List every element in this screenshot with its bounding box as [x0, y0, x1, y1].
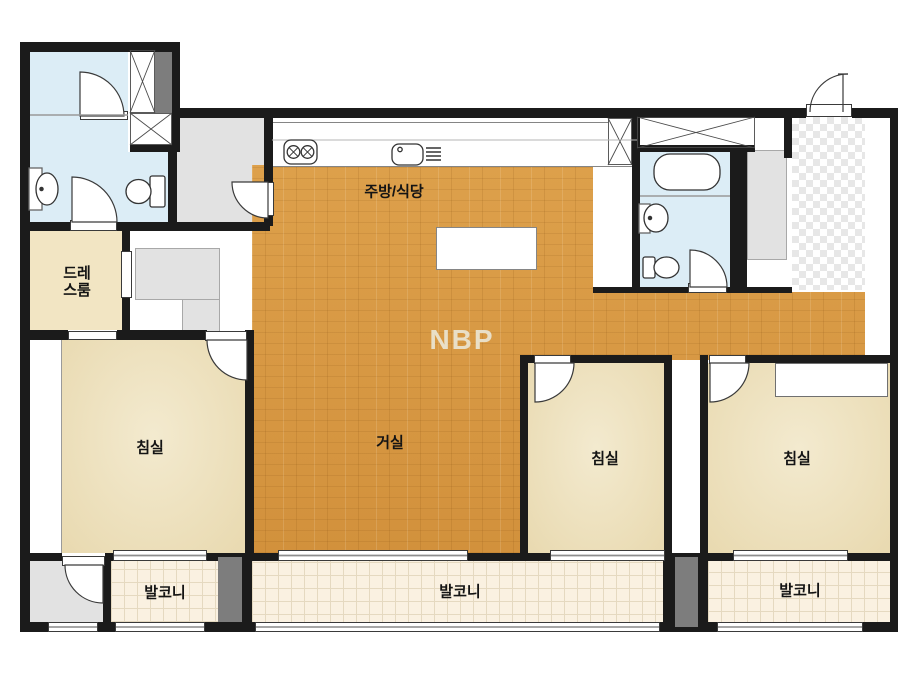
room-label-bedroom-left: 침실 — [136, 441, 164, 458]
washbasin-icon — [29, 168, 58, 210]
wardrobe-hatch-icon — [130, 50, 755, 165]
washbasin-icon — [639, 204, 668, 233]
room-label-dressroom: 드레 스룸 — [63, 266, 91, 300]
room-label-bedroom-right: 침실 — [783, 452, 811, 469]
watermark: NBP — [429, 324, 494, 356]
dish-rack-icon — [426, 148, 441, 160]
stove-icon — [284, 140, 317, 164]
toilet-icon — [126, 176, 165, 207]
room-label-balcony-right: 발코니 — [779, 584, 820, 601]
floor-plan: 주방/식당 드레 스룸 거실 침실 침실 침실 발코니 발코니 발코니 NBP — [0, 0, 923, 676]
room-label-balcony-left: 발코니 — [144, 586, 185, 603]
room-label-living: 거실 — [376, 436, 404, 453]
room-label-kitchen: 주방/식당 — [364, 185, 423, 202]
room-label-bedroom-center: 침실 — [591, 452, 619, 469]
bathtub-icon — [654, 154, 720, 190]
toilet-icon — [643, 257, 679, 278]
entrance-door-swing-icon — [810, 74, 848, 112]
room-label-balcony-center: 발코니 — [439, 585, 480, 602]
kitchen-sink-icon — [392, 144, 423, 165]
